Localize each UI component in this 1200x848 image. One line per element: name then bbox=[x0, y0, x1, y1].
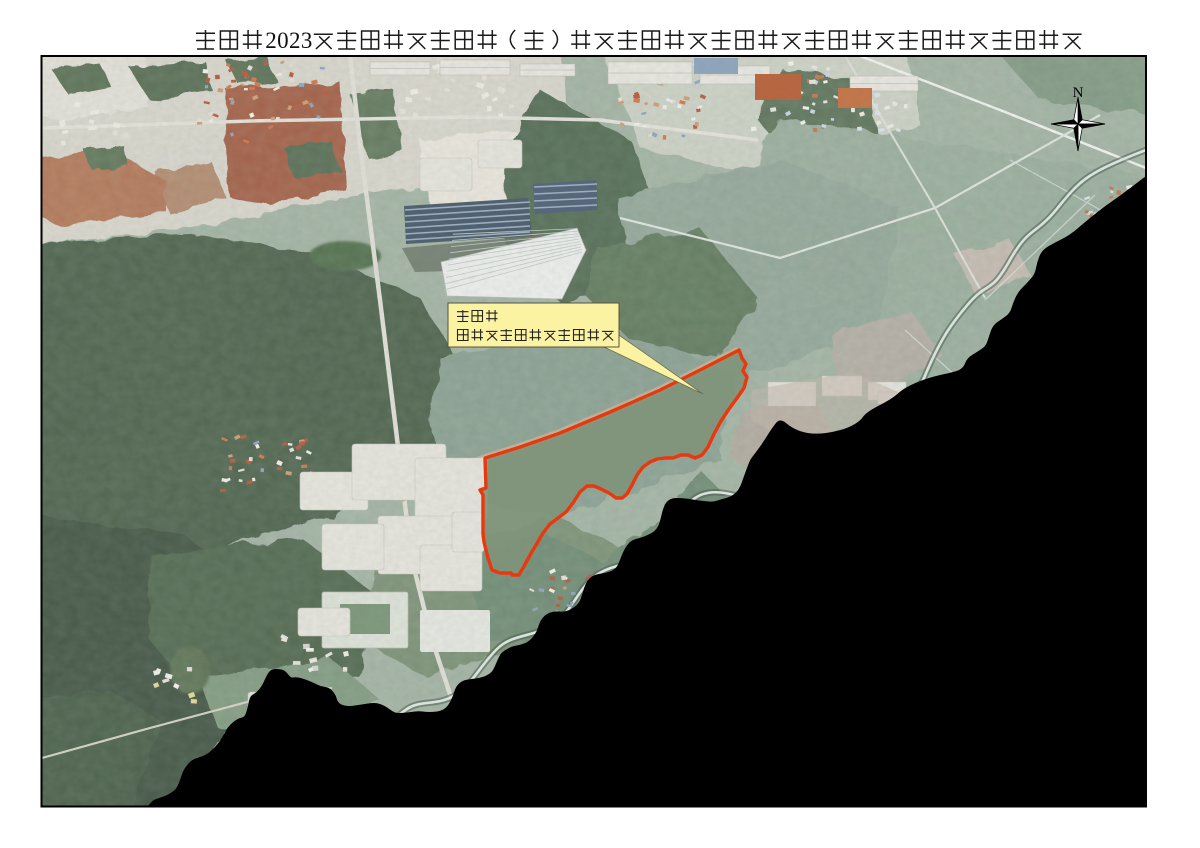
svg-text:2: 2 bbox=[289, 28, 301, 53]
svg-text:2: 2 bbox=[265, 28, 277, 53]
svg-text:0: 0 bbox=[277, 28, 289, 53]
svg-text:N: N bbox=[1073, 85, 1084, 101]
svg-text:3: 3 bbox=[301, 28, 313, 53]
